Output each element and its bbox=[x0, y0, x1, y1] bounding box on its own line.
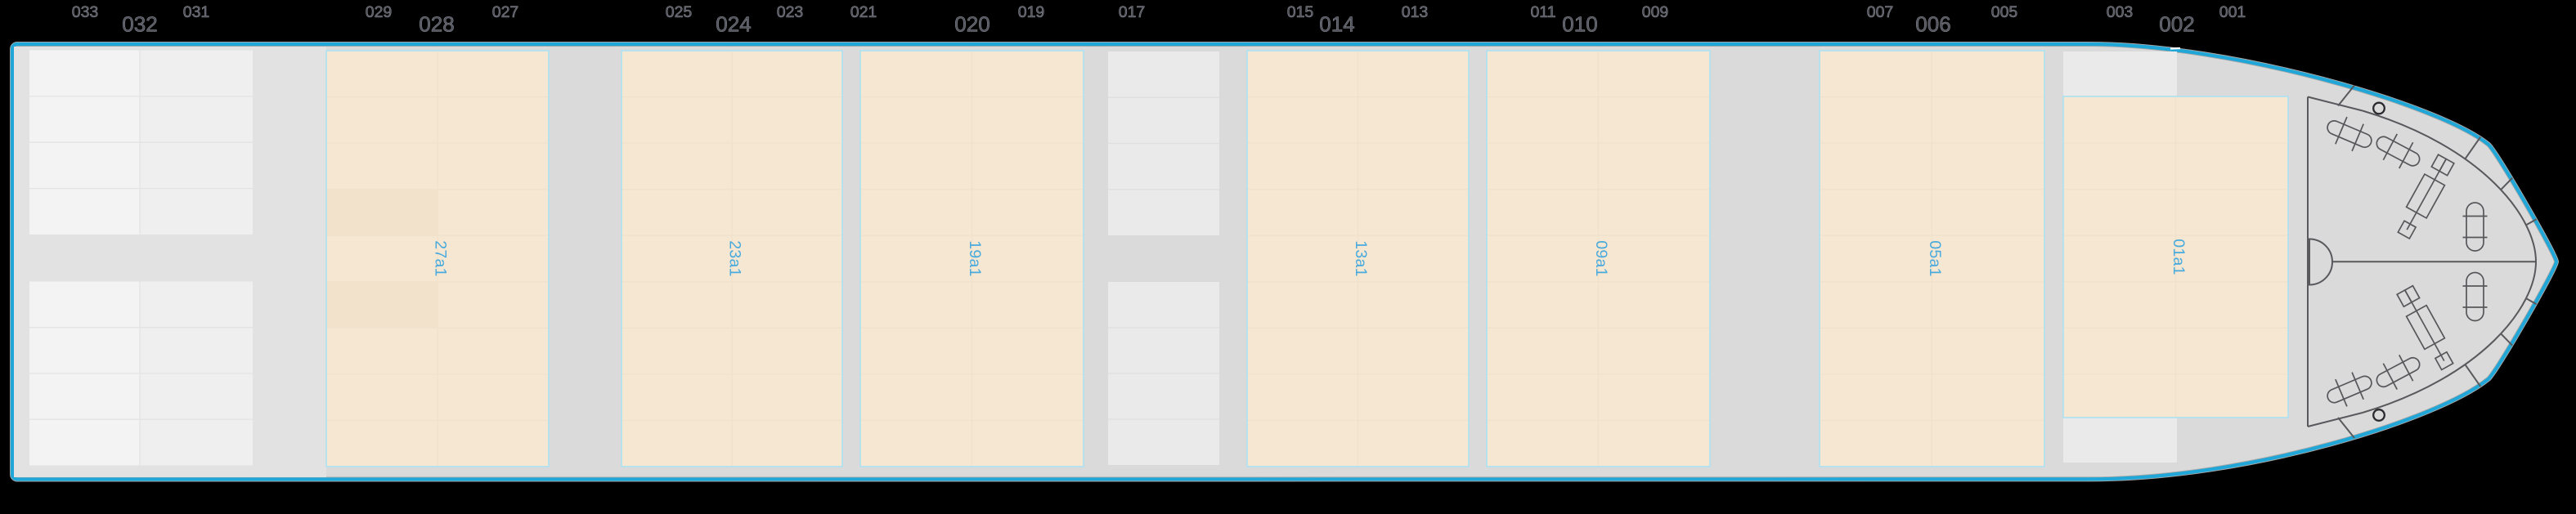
svg-text:025: 025 bbox=[666, 3, 693, 21]
svg-text:19a1: 19a1 bbox=[966, 240, 984, 277]
svg-text:029: 029 bbox=[366, 3, 393, 21]
svg-text:032: 032 bbox=[122, 12, 157, 37]
svg-text:005: 005 bbox=[1991, 3, 2018, 21]
svg-text:031: 031 bbox=[183, 3, 210, 21]
svg-text:09a1: 09a1 bbox=[1592, 240, 1610, 277]
svg-text:023: 023 bbox=[777, 3, 804, 21]
svg-text:021: 021 bbox=[850, 3, 877, 21]
svg-text:028: 028 bbox=[419, 12, 454, 37]
svg-text:013: 013 bbox=[1402, 3, 1429, 21]
svg-text:011: 011 bbox=[1530, 3, 1555, 21]
svg-text:015: 015 bbox=[1287, 3, 1314, 21]
svg-text:23a1: 23a1 bbox=[726, 240, 744, 277]
svg-text:002: 002 bbox=[2159, 12, 2194, 37]
svg-text:024: 024 bbox=[716, 12, 751, 37]
svg-text:001: 001 bbox=[2219, 3, 2246, 21]
svg-text:014: 014 bbox=[1319, 12, 1354, 37]
svg-text:009: 009 bbox=[1642, 3, 1669, 21]
svg-text:01a1: 01a1 bbox=[2170, 239, 2188, 275]
svg-text:13a1: 13a1 bbox=[1352, 240, 1370, 277]
svg-text:003: 003 bbox=[2107, 3, 2134, 21]
svg-text:019: 019 bbox=[1018, 3, 1045, 21]
svg-text:033: 033 bbox=[72, 3, 99, 21]
svg-text:027: 027 bbox=[492, 3, 519, 21]
svg-text:010: 010 bbox=[1562, 12, 1597, 37]
svg-text:006: 006 bbox=[1915, 12, 1950, 37]
svg-text:020: 020 bbox=[954, 12, 990, 37]
svg-text:05a1: 05a1 bbox=[1926, 240, 1944, 277]
svg-text:27a1: 27a1 bbox=[432, 240, 450, 277]
svg-text:007: 007 bbox=[1867, 3, 1894, 21]
svg-text:017: 017 bbox=[1119, 3, 1146, 21]
